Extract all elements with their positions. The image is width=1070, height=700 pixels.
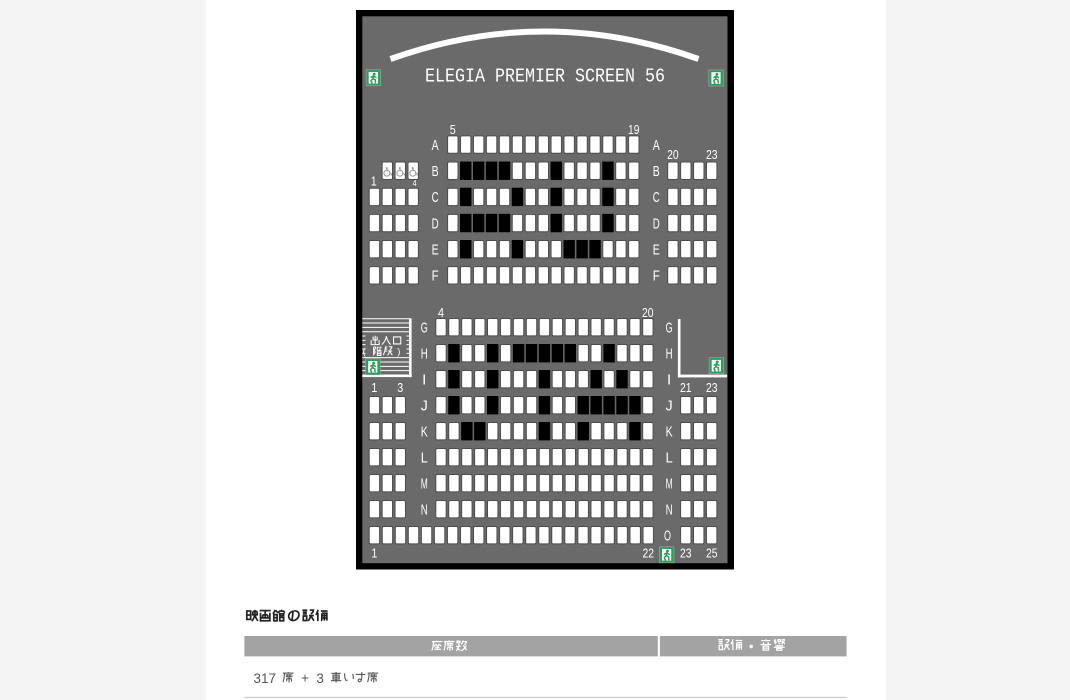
svg-text:A: A xyxy=(652,137,659,154)
svg-text:D: D xyxy=(652,215,659,232)
svg-text:23: 23 xyxy=(705,147,717,162)
svg-text:3: 3 xyxy=(316,671,324,686)
svg-text:K: K xyxy=(665,424,672,441)
svg-text:F: F xyxy=(652,268,659,285)
svg-text:+: + xyxy=(301,671,309,686)
svg-text:22: 22 xyxy=(642,545,654,560)
svg-text:M: M xyxy=(420,476,427,493)
svg-text:): ) xyxy=(397,346,400,357)
svg-text:I: I xyxy=(422,372,426,389)
svg-text:4: 4 xyxy=(412,179,416,188)
svg-text:O: O xyxy=(664,528,671,545)
svg-text:G: G xyxy=(665,320,672,337)
svg-text:N: N xyxy=(420,502,427,519)
svg-text:20: 20 xyxy=(641,305,653,320)
svg-text:J: J xyxy=(665,398,672,415)
svg-text:M: M xyxy=(665,476,672,493)
svg-text:H: H xyxy=(420,346,427,363)
svg-text:23: 23 xyxy=(705,380,717,395)
svg-text:ELEGIA PREMIER SCREEN 56: ELEGIA PREMIER SCREEN 56 xyxy=(425,65,665,87)
svg-text:21: 21 xyxy=(680,380,692,395)
svg-text:N: N xyxy=(665,502,672,519)
svg-text:I: I xyxy=(667,372,671,389)
svg-text:4: 4 xyxy=(438,305,444,320)
svg-text:25: 25 xyxy=(705,545,717,560)
svg-text:F: F xyxy=(431,268,438,285)
svg-text:E: E xyxy=(431,242,438,259)
svg-text:1: 1 xyxy=(371,380,377,395)
svg-text:G: G xyxy=(420,320,427,337)
svg-text:L: L xyxy=(420,450,427,467)
svg-text:L: L xyxy=(665,450,672,467)
svg-text:3: 3 xyxy=(397,380,403,395)
svg-text:1: 1 xyxy=(371,545,377,560)
svg-text:H: H xyxy=(665,346,672,363)
svg-text:19: 19 xyxy=(628,122,640,137)
svg-text:5: 5 xyxy=(449,122,455,137)
svg-text:1: 1 xyxy=(370,174,376,189)
svg-text:B: B xyxy=(652,163,659,180)
svg-text:J: J xyxy=(420,398,427,415)
svg-text:C: C xyxy=(431,189,438,206)
svg-text:D: D xyxy=(431,215,438,232)
svg-text:A: A xyxy=(431,137,438,154)
svg-text:C: C xyxy=(652,189,659,206)
svg-text:317: 317 xyxy=(254,671,277,686)
svg-text:E: E xyxy=(652,242,659,259)
svg-text:K: K xyxy=(420,424,427,441)
svg-text:23: 23 xyxy=(680,545,692,560)
svg-text:B: B xyxy=(431,163,438,180)
svg-text:20: 20 xyxy=(667,147,679,162)
